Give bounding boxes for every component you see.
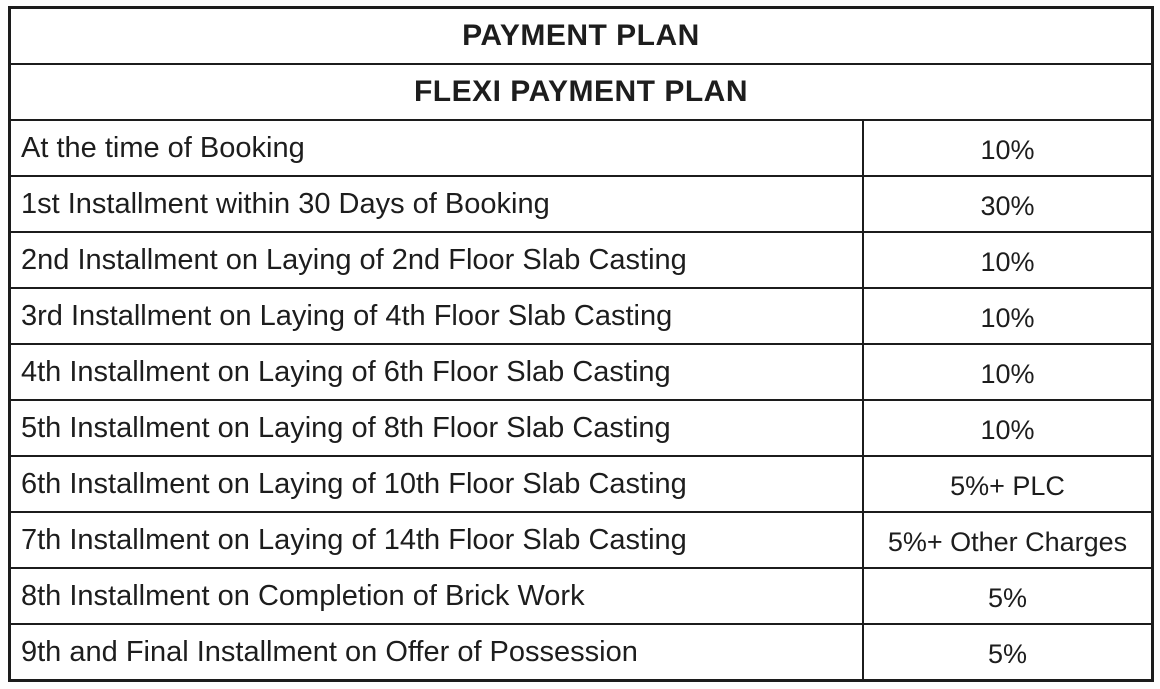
table-row: 9th and Final Installment on Offer of Po… bbox=[11, 623, 1151, 679]
table-row: 5th Installment on Laying of 8th Floor S… bbox=[11, 399, 1151, 455]
payment-value: 10% bbox=[862, 289, 1151, 343]
payment-value: 10% bbox=[862, 233, 1151, 287]
milestone-label: 3rd Installment on Laying of 4th Floor S… bbox=[11, 289, 862, 343]
milestone-label: 2nd Installment on Laying of 2nd Floor S… bbox=[11, 233, 862, 287]
payment-plan-table: PAYMENT PLAN FLEXI PAYMENT PLAN At the t… bbox=[8, 6, 1154, 682]
payment-value: 5%+ Other Charges bbox=[862, 513, 1151, 567]
payment-value: 5%+ PLC bbox=[862, 457, 1151, 511]
table-title-row: PAYMENT PLAN bbox=[11, 9, 1151, 63]
table-row: 7th Installment on Laying of 14th Floor … bbox=[11, 511, 1151, 567]
table-row: 4th Installment on Laying of 6th Floor S… bbox=[11, 343, 1151, 399]
payment-value: 10% bbox=[862, 121, 1151, 175]
milestone-label: At the time of Booking bbox=[11, 121, 862, 175]
table-row: 6th Installment on Laying of 10th Floor … bbox=[11, 455, 1151, 511]
payment-value: 30% bbox=[862, 177, 1151, 231]
table-row: At the time of Booking 10% bbox=[11, 119, 1151, 175]
milestone-label: 9th and Final Installment on Offer of Po… bbox=[11, 625, 862, 679]
document-page: PAYMENT PLAN FLEXI PAYMENT PLAN At the t… bbox=[0, 0, 1160, 689]
table-subtitle: FLEXI PAYMENT PLAN bbox=[414, 75, 748, 109]
table-row: 2nd Installment on Laying of 2nd Floor S… bbox=[11, 231, 1151, 287]
table-subtitle-row: FLEXI PAYMENT PLAN bbox=[11, 63, 1151, 119]
table-row: 3rd Installment on Laying of 4th Floor S… bbox=[11, 287, 1151, 343]
table-title: PAYMENT PLAN bbox=[462, 19, 700, 53]
milestone-label: 4th Installment on Laying of 6th Floor S… bbox=[11, 345, 862, 399]
payment-value: 5% bbox=[862, 625, 1151, 679]
milestone-label: 1st Installment within 30 Days of Bookin… bbox=[11, 177, 862, 231]
payment-value: 10% bbox=[862, 345, 1151, 399]
milestone-label: 8th Installment on Completion of Brick W… bbox=[11, 569, 862, 623]
payment-value: 10% bbox=[862, 401, 1151, 455]
table-row: 8th Installment on Completion of Brick W… bbox=[11, 567, 1151, 623]
table-row: 1st Installment within 30 Days of Bookin… bbox=[11, 175, 1151, 231]
milestone-label: 5th Installment on Laying of 8th Floor S… bbox=[11, 401, 862, 455]
payment-value: 5% bbox=[862, 569, 1151, 623]
milestone-label: 6th Installment on Laying of 10th Floor … bbox=[11, 457, 862, 511]
milestone-label: 7th Installment on Laying of 14th Floor … bbox=[11, 513, 862, 567]
